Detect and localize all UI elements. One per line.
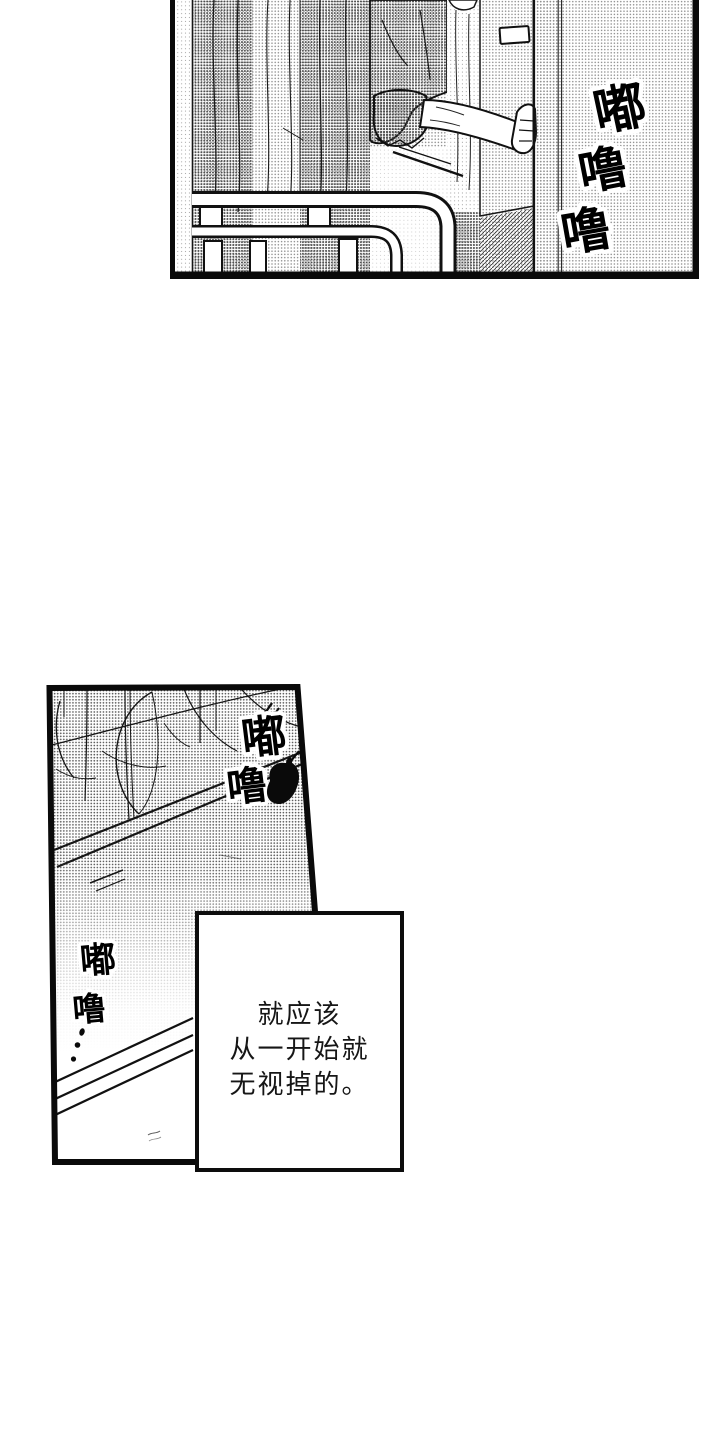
panel-top: 嘟 嘟 噜 噜 噜 噜 — [168, 0, 700, 279]
dialogue-line: 就应该 — [257, 1001, 341, 1027]
dialogue-box: 就应该 从一开始就 无视掉的。 — [195, 911, 404, 1172]
bed-post — [175, 0, 193, 277]
sfx-char: 嘟 — [239, 709, 290, 765]
patient-trousers — [480, 208, 534, 277]
jacket-pocket — [499, 26, 529, 44]
sfx-char: 噜 — [71, 989, 107, 1029]
sfx-char: 噜 — [574, 140, 631, 201]
sfx-char: 噜 — [224, 763, 269, 812]
manga-page: 嘟 嘟 噜 噜 噜 噜 — [0, 0, 720, 1440]
dialogue-line: 无视掉的。 — [229, 1071, 369, 1097]
sfx-char: 嘟 — [78, 938, 117, 982]
sfx-char: 噜 — [557, 201, 615, 263]
dialogue-line: 从一开始就 — [229, 1036, 369, 1062]
